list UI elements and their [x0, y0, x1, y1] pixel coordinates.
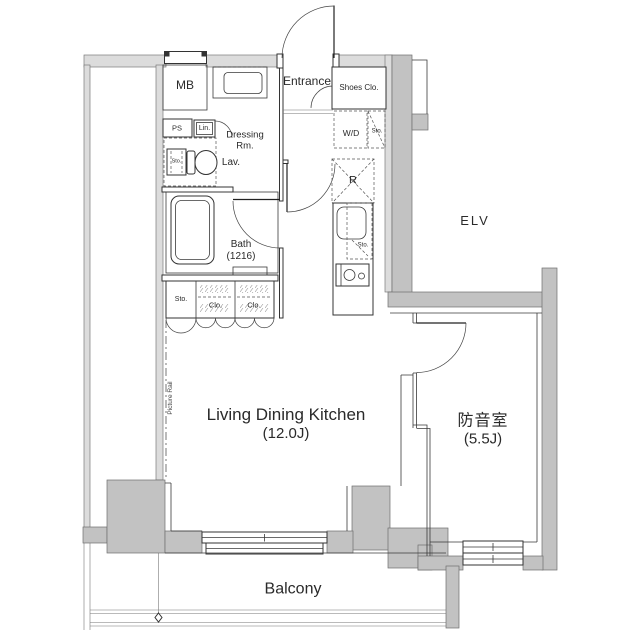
label-linen: Lin. [199, 125, 210, 133]
label-pipe-space: PS [172, 124, 182, 133]
label-storage-wd: Sto. [372, 128, 383, 135]
kitchen-counter [333, 203, 373, 315]
elevator-walls [388, 55, 557, 570]
label-meter-box: MB [176, 78, 194, 92]
soundproof-door-icon [417, 323, 467, 373]
soundproof-window-icon [463, 541, 523, 565]
hall-door-icon [287, 164, 335, 213]
label-soundproof-room: 防音室 (5.5J) [457, 411, 508, 448]
label-storage-toilet: Sto. [172, 159, 182, 166]
floor-plan: MB PS Lin. Sto. Lav. Dressing Rm. Entran… [0, 0, 640, 640]
label-ldk: Living Dining Kitchen (12.0J) [207, 405, 366, 443]
label-picture-rail: Picture Rail [167, 381, 175, 414]
label-washer-dryer: W/D [343, 127, 360, 137]
folding-doors-icon [166, 318, 274, 333]
floor-plan-drawing [0, 0, 640, 640]
label-storage-closet: Sto. [175, 296, 187, 304]
label-storage-kitchen: Sto. [358, 242, 369, 249]
label-dressing-room: Dressing Rm. [226, 130, 264, 153]
label-lavatory: Lav. [222, 157, 240, 169]
label-balcony: Balcony [265, 579, 322, 598]
label-bath: Bath (1216) [227, 239, 256, 263]
entrance-door-icon [277, 6, 339, 109]
bathtub-icon [171, 196, 214, 264]
label-closet-2: Clo. [247, 301, 260, 310]
bath-room [166, 192, 280, 275]
balcony-rail-icon [90, 610, 446, 626]
label-entrance: Entrance [283, 74, 331, 88]
label-closet-1: Clo. [209, 301, 222, 310]
label-shoes-closet: Shoes Clo. [339, 83, 378, 93]
meter-box-door-icon [165, 52, 207, 64]
label-refrigerator: R [349, 174, 357, 187]
stove-icon [336, 264, 369, 286]
label-elevator: ELV [460, 213, 490, 229]
partition-walls [162, 65, 333, 318]
vanity-icon [213, 67, 267, 98]
